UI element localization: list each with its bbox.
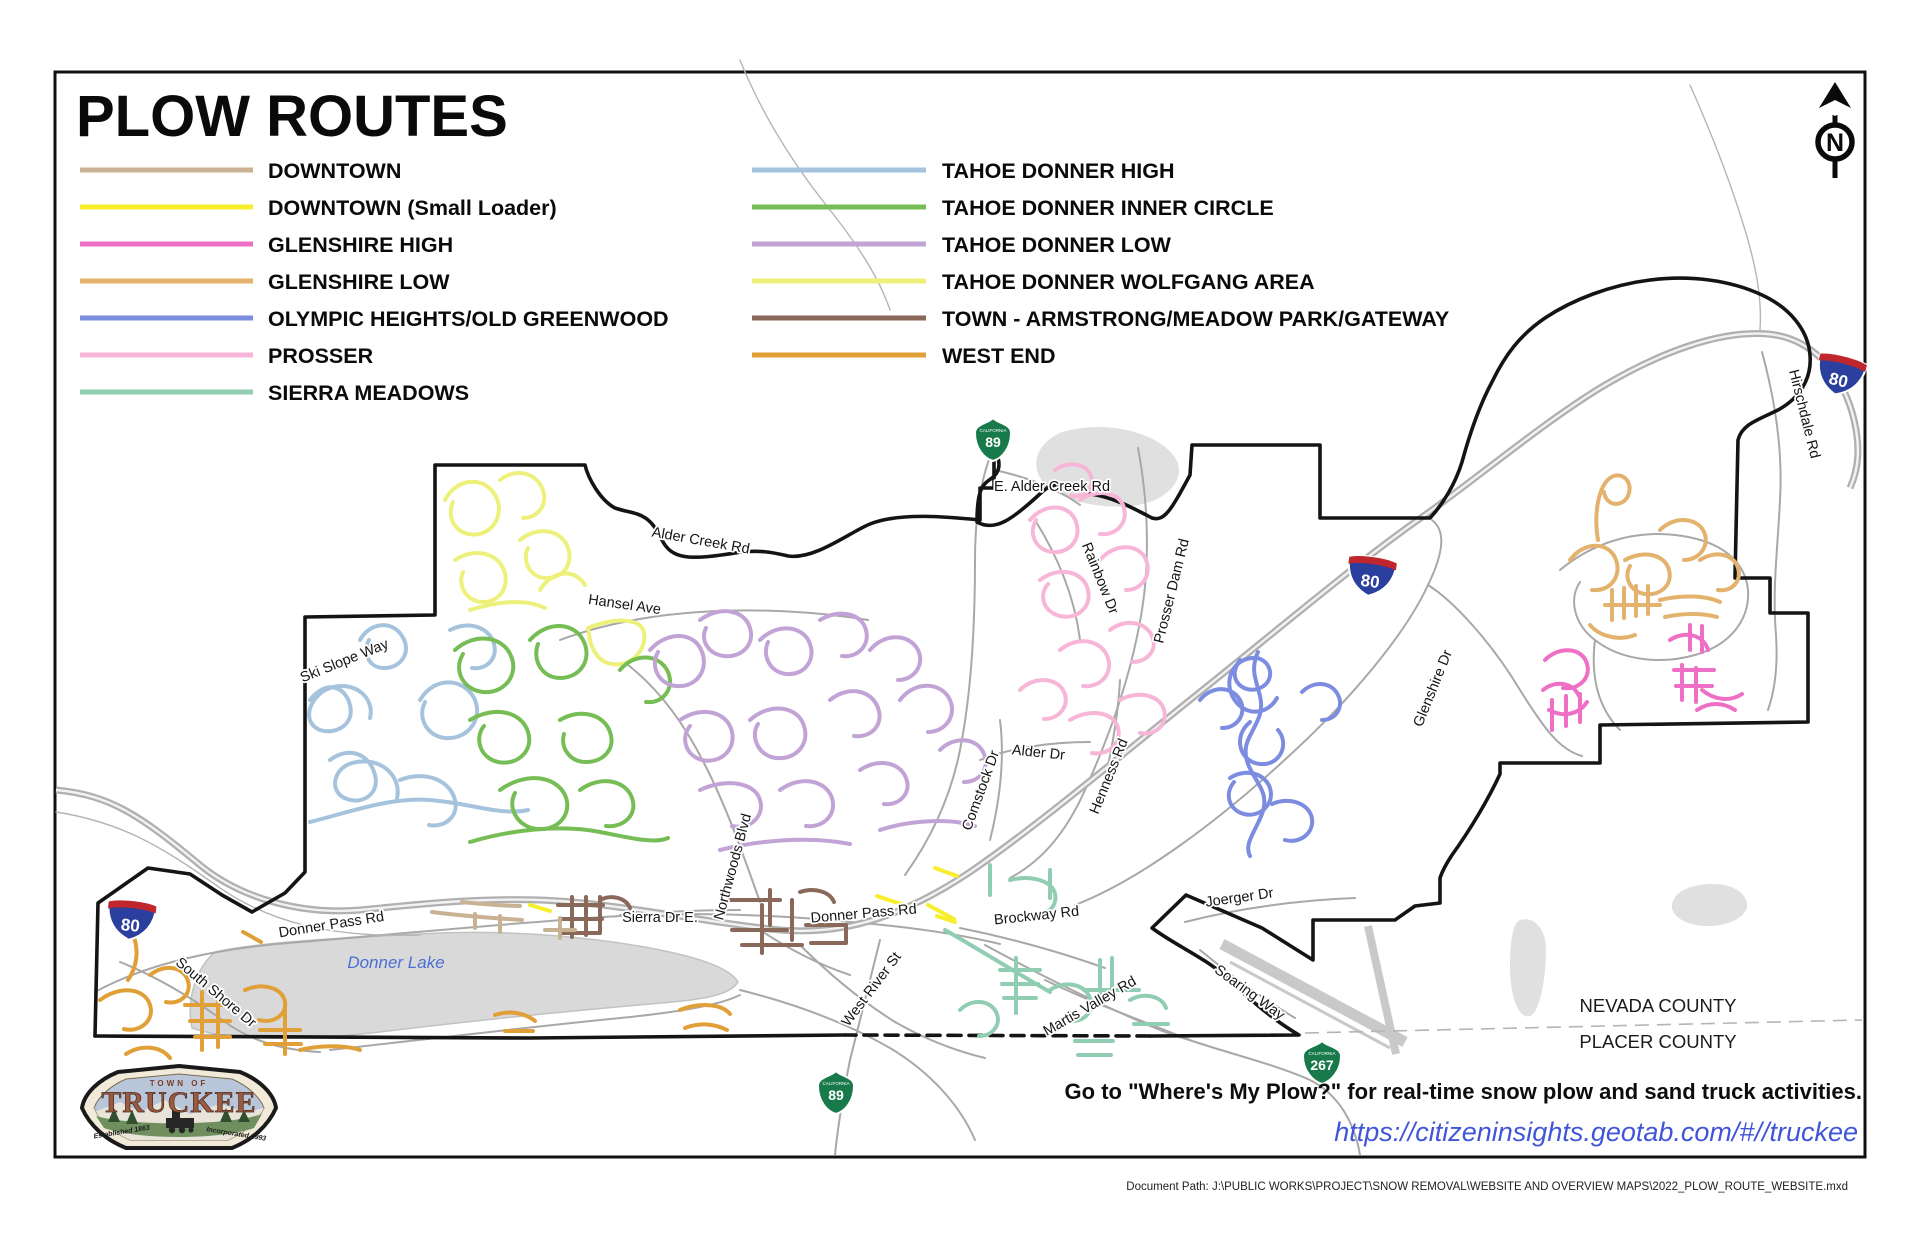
plow-routes-map-page: Donner Lake Alder Creek Rd E. Alder Cree… [0,0,1920,1242]
legend-label-downtown-small-loader: DOWNTOWN (Small Loader) [268,196,557,220]
legend-label-sierra-meadows: SIERRA MEADOWS [268,381,469,405]
plow-tracker-url[interactable]: https://citizeninsights.geotab.com/#//tr… [1334,1117,1858,1147]
donner-lake-label: Donner Lake [347,953,444,972]
svg-text:CALIFORNIA: CALIFORNIA [822,1081,849,1086]
svg-text:89: 89 [985,434,1001,450]
legend-label-tahoe-donner-low: TAHOE DONNER LOW [942,233,1172,257]
truckee-logo: TOWN OF TRUCKEE Established 1863 Incorpo… [82,1066,276,1148]
wheres-my-plow-note: Go to "Where's My Plow?" for real-time s… [1065,1079,1862,1104]
svg-text:80: 80 [120,915,141,936]
legend-label-tahoe-donner-high: TAHOE DONNER HIGH [942,159,1175,183]
svg-text:89: 89 [828,1087,844,1103]
road-label-sierra-dr-e: Sierra Dr E. [622,910,698,926]
north-letter: N [1826,129,1844,157]
legend-label-downtown: DOWNTOWN [268,159,401,183]
page-title: PLOW ROUTES [76,84,508,149]
logo-name: TRUCKEE [101,1086,256,1119]
legend-label-glenshire-high: GLENSHIRE HIGH [268,233,453,257]
county-label-nevada: NEVADA COUNTY [1580,995,1737,1016]
svg-text:CALIFORNIA: CALIFORNIA [979,428,1006,433]
county-label-placer: PLACER COUNTY [1579,1031,1736,1052]
svg-text:CALIFORNIA: CALIFORNIA [1308,1051,1335,1056]
map-canvas: Donner Lake Alder Creek Rd E. Alder Cree… [0,0,1920,1242]
document-path: Document Path: J:\PUBLIC WORKS\PROJECT\S… [1126,1181,1848,1193]
legend-label-prosser: PROSSER [268,344,374,368]
legend-label-olympic-heights: OLYMPIC HEIGHTS/OLD GREENWOOD [268,307,669,331]
legend-label-west-end: WEST END [942,344,1055,368]
legend-label-tahoe-donner-inner: TAHOE DONNER INNER CIRCLE [942,196,1274,220]
svg-text:267: 267 [1310,1057,1334,1073]
svg-text:80: 80 [1359,571,1380,592]
legend-label-tahoe-donner-wolfgang: TAHOE DONNER WOLFGANG AREA [942,270,1315,294]
legend-label-glenshire-low: GLENSHIRE LOW [268,270,450,294]
legend-label-town-armstrong: TOWN - ARMSTRONG/MEADOW PARK/GATEWAY [942,307,1449,331]
road-label-e-alder-creek-rd: E. Alder Creek Rd [994,479,1110,495]
